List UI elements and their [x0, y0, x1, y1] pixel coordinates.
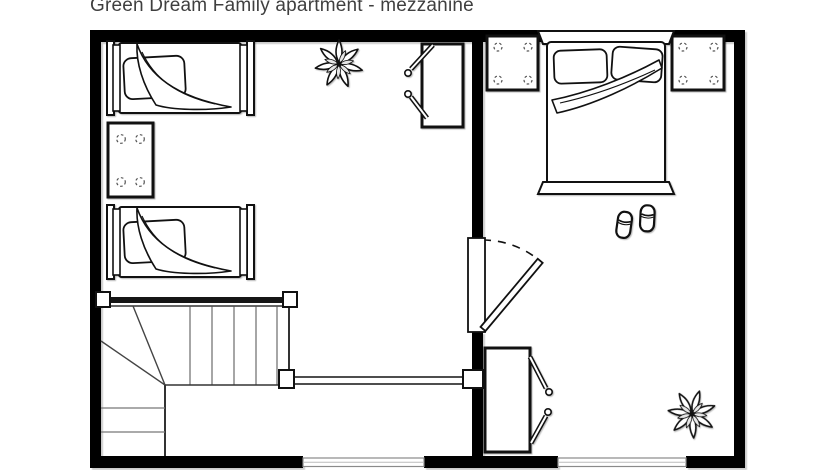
wall-bottom-segment-3 [686, 456, 745, 468]
railing-post [283, 292, 297, 307]
stair-lower-treads [101, 408, 165, 432]
wall-left [90, 30, 101, 468]
railing-post [96, 292, 110, 307]
door-swing-arc [483, 240, 540, 261]
bedside-table-left [487, 36, 538, 90]
chair-icon [530, 357, 552, 395]
plant-icon-2 [662, 384, 722, 444]
window-left-room [303, 458, 424, 467]
single-bed-2 [107, 205, 254, 279]
door-leaf [481, 259, 543, 331]
floorplan-drawing [0, 0, 815, 470]
railing-post [279, 370, 294, 388]
wall-divider-lower [472, 332, 483, 456]
desk-1 [405, 44, 463, 127]
stair-treads [190, 307, 277, 385]
slippers-icon [615, 205, 655, 239]
railing-opening-bar [294, 377, 466, 384]
pillow [553, 49, 607, 84]
wall-bottom-segment-2 [424, 456, 558, 468]
table-four-seats [108, 123, 153, 197]
wall-bottom-segment-1 [90, 456, 303, 468]
stair-winders [101, 306, 165, 385]
window-right-room [558, 458, 686, 467]
chair-icon [531, 409, 551, 443]
railing-top-bar [103, 297, 289, 303]
door [468, 238, 543, 332]
double-bed [538, 31, 674, 194]
wall-right [734, 30, 745, 468]
floorplan-page: Green Dream Family apartment - mezzanine [0, 0, 815, 470]
railing-post [463, 370, 483, 388]
single-bed-1 [107, 41, 254, 115]
wall-divider-upper [472, 42, 483, 238]
staircase [101, 306, 290, 456]
plant-icon-1 [315, 40, 363, 87]
desk-2 [485, 348, 552, 452]
footboard [538, 182, 674, 194]
bedside-table-right [672, 36, 724, 90]
door-frame [468, 238, 485, 332]
